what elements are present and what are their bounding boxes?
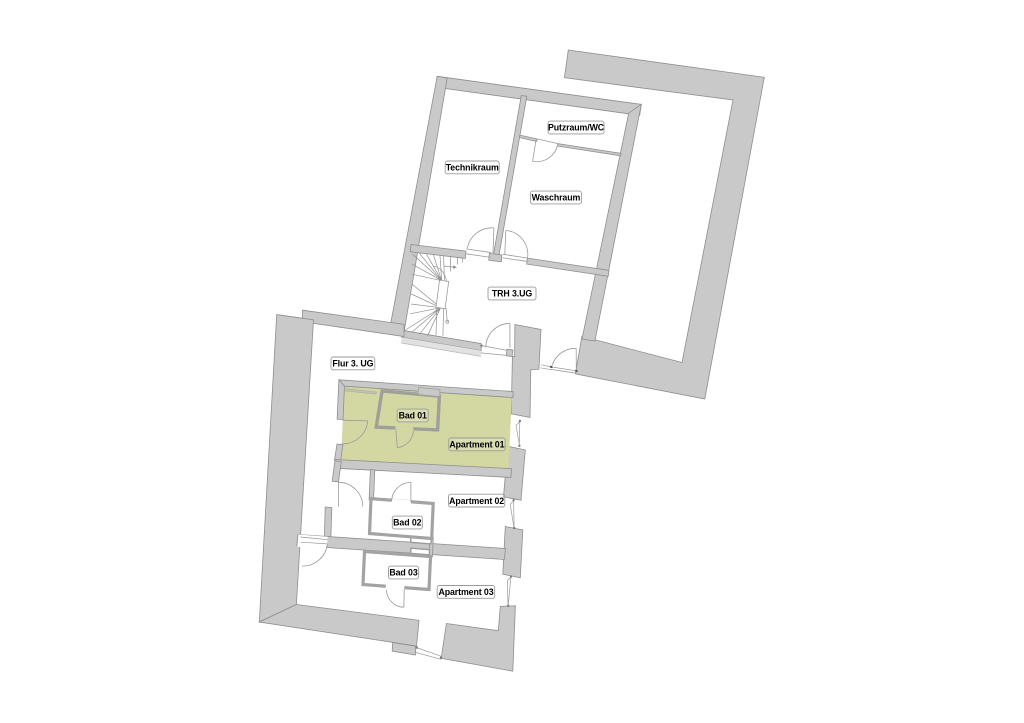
- svg-text:Bad 02: Bad 02: [393, 518, 421, 528]
- svg-text:Apartment 03: Apartment 03: [438, 587, 493, 597]
- svg-text:Technikraum: Technikraum: [446, 163, 499, 173]
- svg-text:Apartment 01: Apartment 01: [449, 440, 504, 450]
- svg-text:TRH 3.UG: TRH 3.UG: [492, 289, 533, 299]
- svg-text:Putzraum/WC: Putzraum/WC: [548, 123, 605, 133]
- svg-text:Bad 03: Bad 03: [389, 568, 417, 578]
- svg-text:Apartment 02: Apartment 02: [449, 496, 504, 506]
- svg-text:Waschraum: Waschraum: [532, 193, 581, 203]
- svg-text:Flur 3. UG: Flur 3. UG: [332, 359, 373, 369]
- svg-text:Bad 01: Bad 01: [399, 411, 427, 421]
